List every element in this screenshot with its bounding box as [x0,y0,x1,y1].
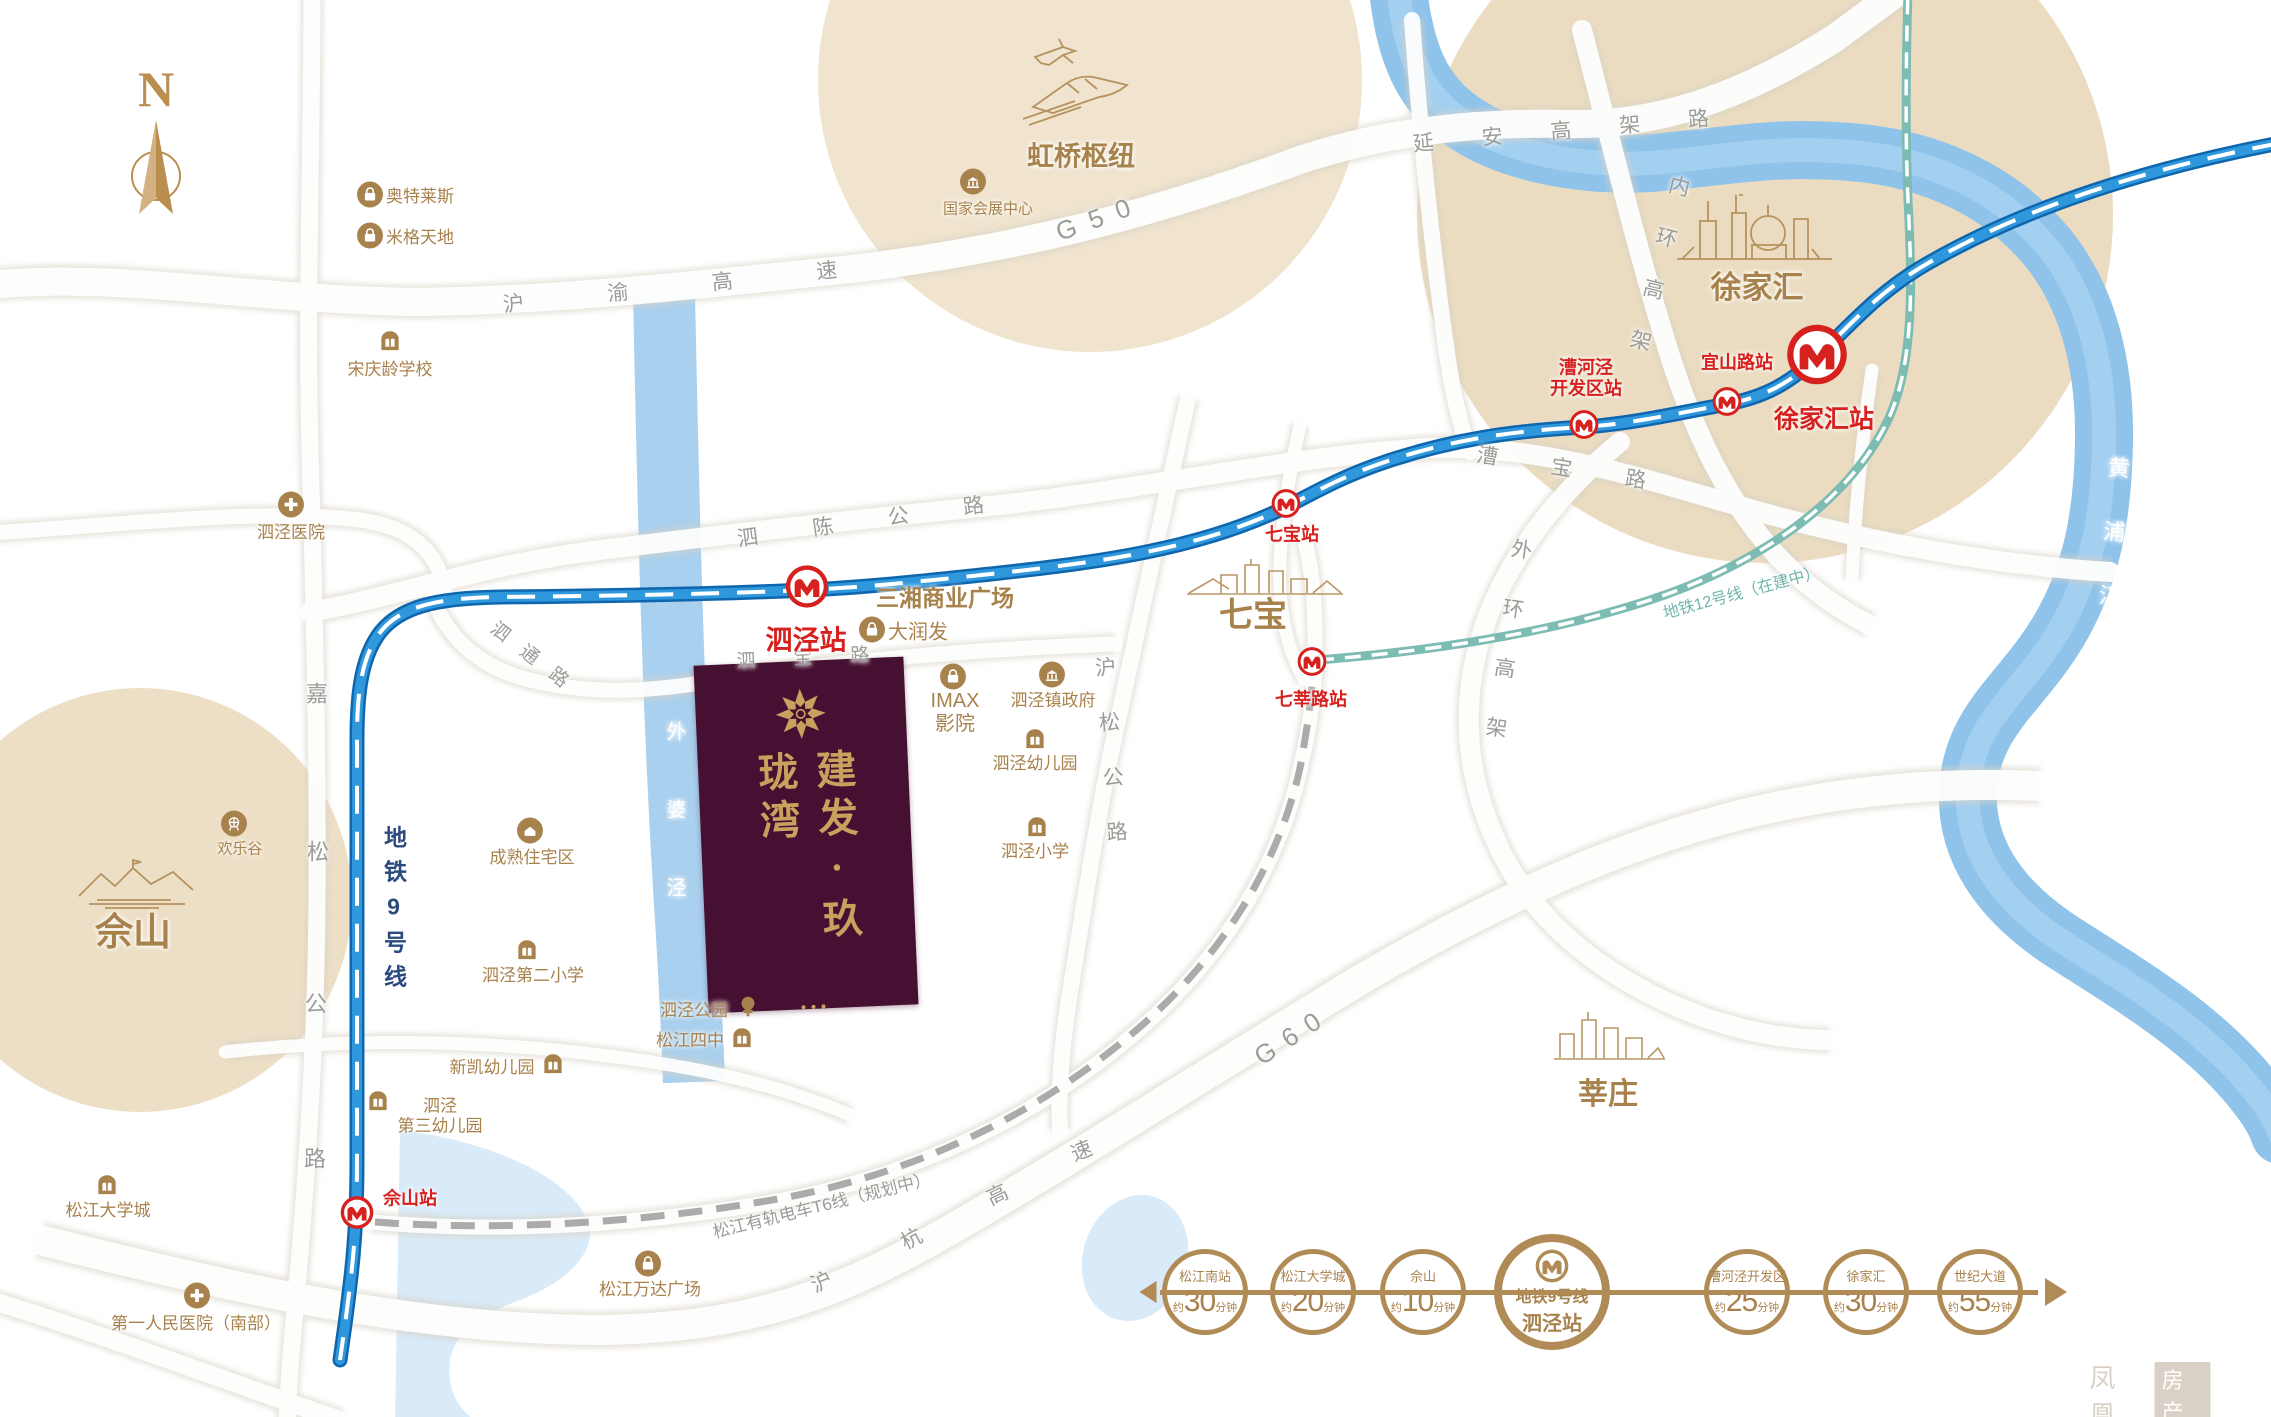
first-peoples-hospital-icon [184,1282,211,1314]
timeline-current-station: 泗泾站 [1522,1307,1582,1336]
timeline-approx-label: 约 [1173,1299,1184,1315]
hongqiao-plane-train-sketch [1015,35,1150,130]
timeline-stop-name: 松江大学城 [1280,1266,1345,1285]
timeline-minutes-label: 分钟 [1323,1299,1345,1315]
timeline-minutes-label: 分钟 [1433,1299,1455,1315]
yishan-road-station-logo-icon [1712,387,1742,422]
xinzhuang-skyline-sketch [1552,1008,1667,1063]
timeline-approx-label: 约 [1834,1299,1845,1315]
metro-logo-gold-icon [1535,1249,1569,1283]
happy-valley-icon [221,810,248,842]
timeline-stop-name: 松江南站 [1179,1266,1231,1285]
pond-southwest [395,1130,590,1417]
timeline-left-arrow-icon [1140,1281,1157,1303]
rivers [395,0,2271,1417]
timeline-approx-label: 约 [1948,1299,1959,1315]
timeline-minutes-label: 分钟 [1757,1299,1779,1315]
soong-ching-ling-school-icon [377,328,404,360]
timeline-minutes-label: 分钟 [1215,1299,1237,1315]
qixin-road-station-logo-icon [1297,647,1327,682]
imax-cinema-icon [940,663,967,695]
sijing-third-kindergarten-icon [365,1088,392,1120]
sijing-park-icon [735,993,762,1025]
sijing-town-gov-icon [1039,661,1066,693]
watermark: 凤凰 房产 [2090,1358,2211,1417]
property-emblem-icon [768,686,834,742]
xujiahui-station-logo-icon [1786,324,1848,391]
timeline-stop-name: 佘山 [1410,1266,1436,1285]
compass-n-label: N [121,60,191,118]
sijing-primary-icon [1024,814,1051,846]
sheshan-station-logo-icon [340,1196,374,1235]
property-name: 建发·玖珑湾 [744,748,871,997]
timeline-minutes-label: 分钟 [1990,1299,2012,1315]
outlets-icon [357,181,384,213]
timeline-minutes-label: 分钟 [1876,1299,1898,1315]
xinkai-kindergarten-icon [540,1051,567,1083]
qibao-station-logo-icon [1271,489,1301,524]
sijing-station-logo-icon [785,565,829,614]
xujiahui-skyline-sketch [1672,185,1837,263]
timeline-right-arrow-icon [2045,1278,2067,1306]
sijing-kindergarten-icon [1022,726,1049,758]
mature-residential-area-icon [517,817,544,849]
compass: N [121,60,191,233]
sheshan-mountain-sketch [75,858,200,910]
necc-icon [960,168,987,200]
sijing-second-primary-icon [514,937,541,969]
watermark-text-2: 房产 [2155,1362,2211,1417]
timeline-stop-name: 徐家汇 [1846,1266,1885,1285]
sijing-hospital-icon [278,491,305,523]
qibao-town-sketch [1185,555,1345,597]
timeline-approx-label: 约 [1281,1299,1292,1315]
property-block: 建发·玖珑湾 [694,657,919,1014]
mige-tiandi-icon [357,222,384,254]
timeline-stop-name: 世纪大道 [1954,1266,2006,1285]
caohejing-station-logo-icon [1569,410,1599,445]
compass-arrow-icon [121,118,191,228]
timeline-approx-label: 约 [1715,1299,1726,1315]
rt-mart-icon [859,616,886,648]
watermark-text-1: 凤凰 [2090,1358,2147,1417]
timeline-connector [1160,1290,2038,1295]
timeline-stop-name: 漕河泾开发区 [1708,1266,1786,1285]
timeline-approx-label: 约 [1391,1299,1402,1315]
songjiang-wanda-plaza-icon [635,1250,662,1282]
location-map: N [0,0,2271,1417]
songjiang-no4-middle-icon [729,1025,756,1057]
songjiang-university-town-icon [94,1172,121,1204]
